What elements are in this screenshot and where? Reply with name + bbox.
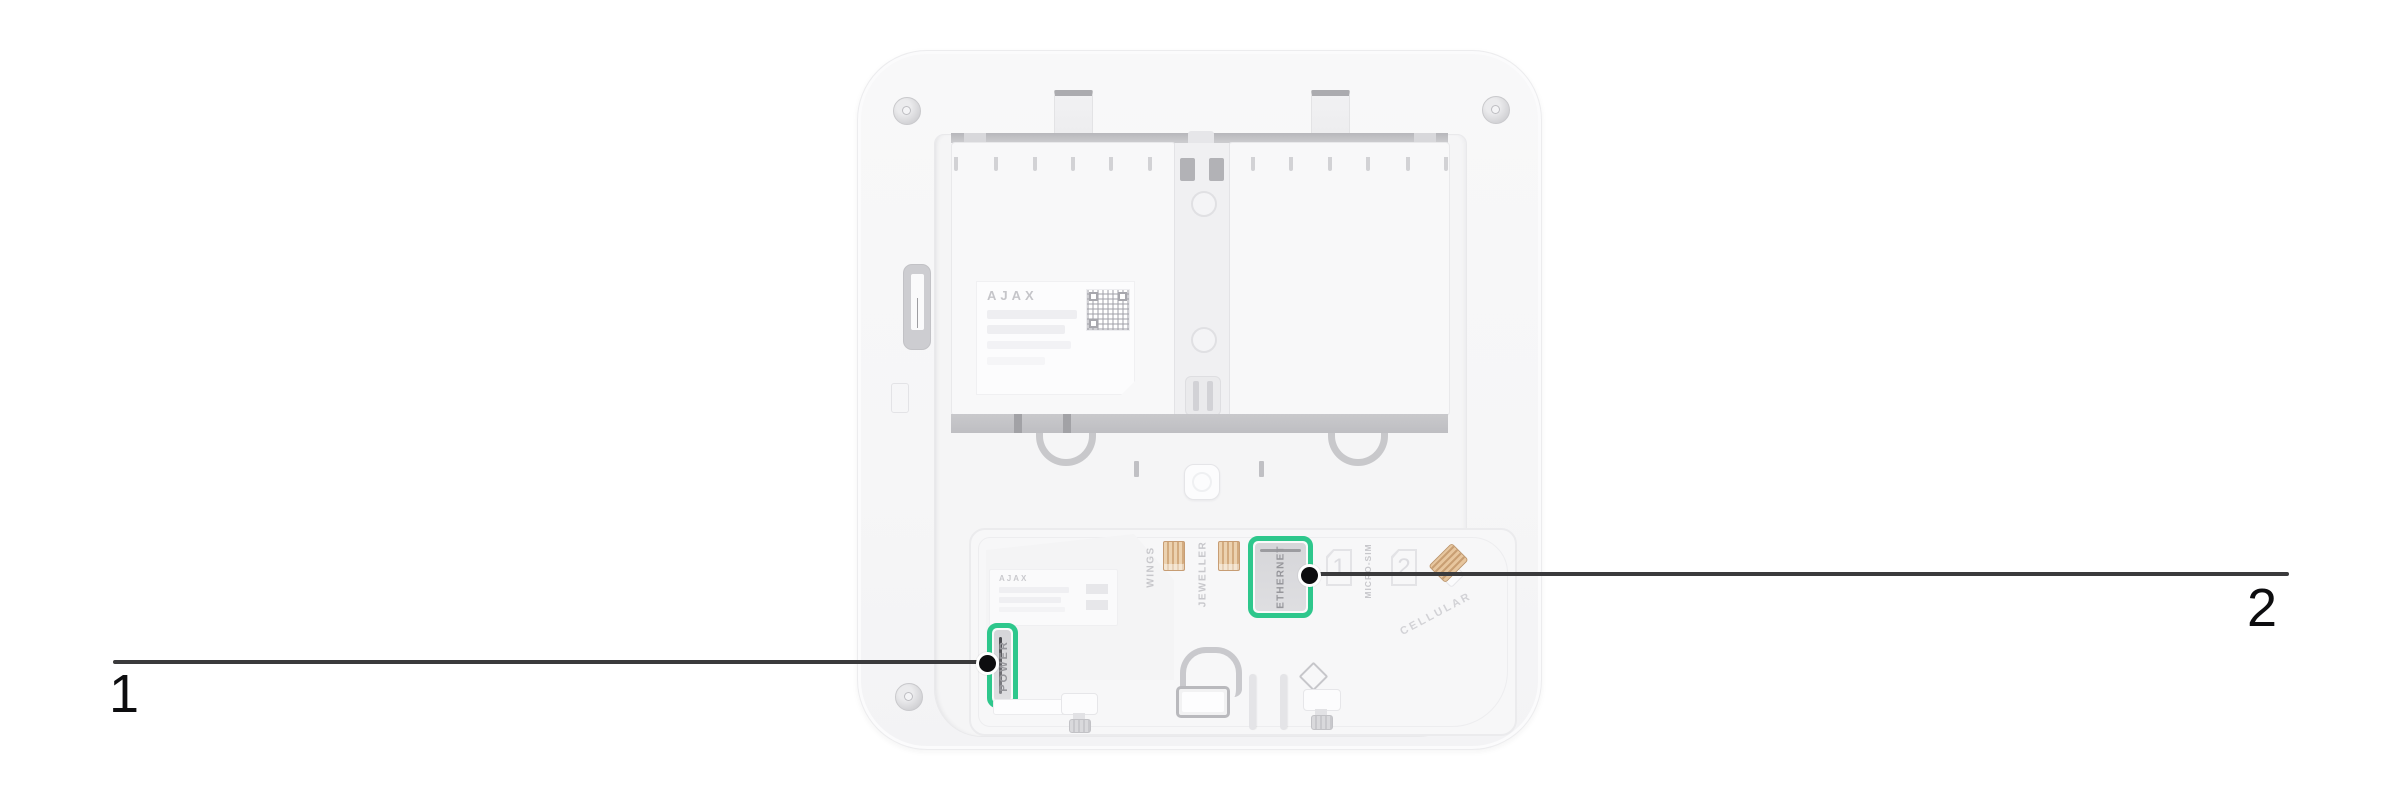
latch-slot (911, 274, 924, 330)
micro-sim-label: MICRO-SIM (1363, 543, 1373, 598)
tick-mark (1444, 157, 1448, 171)
rail-slider (1185, 376, 1221, 416)
sim-slot-2-number: 2 (1391, 549, 1417, 586)
callout-dot-1 (976, 652, 999, 675)
clamp-screw (1069, 719, 1091, 733)
screw-icon (1482, 96, 1510, 124)
pcb-text-bar (999, 597, 1061, 603)
brand-logo: AJAX (987, 288, 1038, 303)
cable-clamp-right (1303, 689, 1341, 711)
sim-slot-2: 2 (1391, 549, 1417, 586)
pcb-brand-logo: AJAX (999, 574, 1028, 583)
side-latch (903, 264, 931, 350)
callout-label-1: 1 (109, 667, 139, 721)
tick-mark (1033, 157, 1037, 171)
pcb-text-bar (999, 587, 1069, 593)
callout-dot-2 (1298, 564, 1321, 587)
pcb-label: AJAX (989, 569, 1118, 626)
rail-contact (1209, 158, 1224, 181)
center-rail (1174, 143, 1230, 414)
label-text-bar (987, 310, 1077, 319)
tick-mark (1071, 157, 1075, 171)
sim-slot-1-number: 1 (1326, 549, 1352, 586)
qr-code (1087, 290, 1129, 330)
tick-mark (1366, 157, 1370, 171)
power-port-label: POWER (998, 640, 1010, 692)
cable-retainer (1176, 686, 1230, 718)
bracket-button (1184, 464, 1220, 500)
sim-slot-1: 1 (1326, 549, 1352, 586)
tick-mark (954, 157, 958, 171)
guide-mark (1134, 461, 1139, 477)
wings-port-label: WINGS (1146, 546, 1157, 587)
ethernet-port-label: ETHERNET (1276, 545, 1287, 609)
label-text-bar (987, 325, 1065, 334)
clamp-screw (1311, 715, 1333, 730)
diagram-canvas: AJAX AJAX WINGS (0, 0, 2400, 808)
rail-notch (1063, 414, 1071, 433)
battery-door-right (1228, 142, 1450, 416)
wings-connector (1163, 541, 1185, 571)
screw-icon (895, 683, 923, 711)
cooling-fin (1249, 674, 1256, 730)
pcb-pad (1086, 584, 1108, 594)
tick-mark (1328, 157, 1332, 171)
tick-mark (1109, 157, 1113, 171)
callout-line-1 (113, 660, 987, 664)
tick-mark (994, 157, 998, 171)
rail-contact (1180, 158, 1195, 181)
rim-detail (891, 383, 909, 413)
device-body: AJAX AJAX WINGS (857, 50, 1542, 750)
device-label: AJAX (976, 281, 1135, 395)
cable-ledge (993, 699, 1067, 715)
rail-hole (1191, 191, 1217, 217)
callout-label-2: 2 (2247, 581, 2277, 635)
tick-mark (1289, 157, 1293, 171)
pcb-text-bar (999, 607, 1065, 612)
callout-line-2 (1309, 572, 2289, 576)
tick-mark (1251, 157, 1255, 171)
label-text-bar (987, 357, 1045, 365)
battery-bottom-rail (951, 414, 1448, 433)
screw-icon (893, 97, 921, 125)
pcb-pad (1086, 600, 1108, 610)
rail-hole (1191, 327, 1217, 353)
cooling-fin (1280, 674, 1287, 730)
rail-notch (1014, 414, 1022, 433)
cable-clamp-left (1061, 693, 1098, 715)
guide-mark (1259, 461, 1264, 477)
jeweller-port-label: JEWELLER (1198, 541, 1209, 607)
label-text-bar (987, 341, 1071, 349)
tick-mark (1406, 157, 1410, 171)
jeweller-connector (1218, 541, 1240, 571)
tick-mark (1148, 157, 1152, 171)
